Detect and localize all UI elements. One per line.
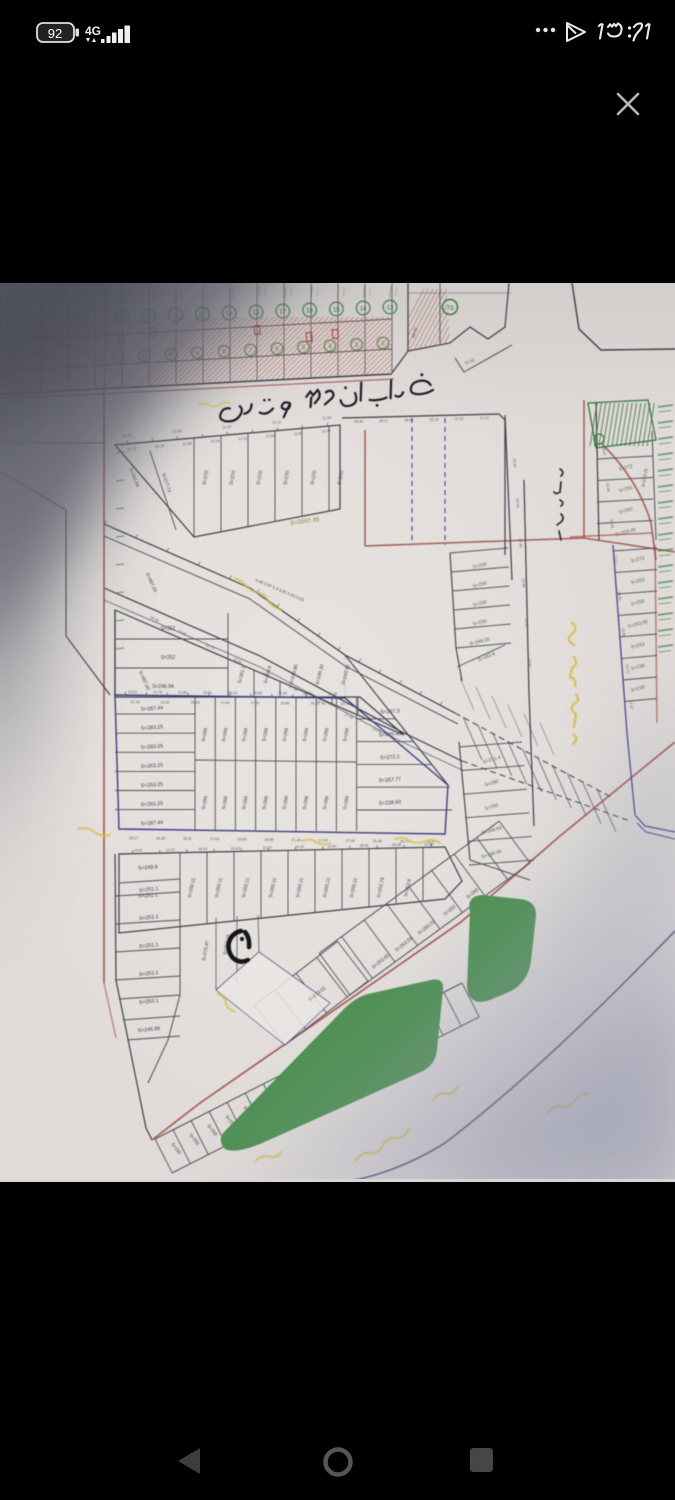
svg-text:21.48: 21.48 (291, 838, 300, 842)
svg-text:19.92: 19.92 (527, 658, 532, 667)
svg-text:20.69: 20.69 (237, 837, 246, 841)
svg-text:28.17: 28.17 (379, 419, 388, 423)
svg-text:17.11: 17.11 (251, 701, 260, 705)
svg-text:15.53: 15.53 (231, 846, 240, 850)
svg-text:30.34: 30.34 (278, 691, 287, 695)
svg-text:15.43: 15.43 (310, 702, 319, 706)
svg-text:30.90: 30.90 (354, 420, 363, 424)
svg-text:17.20: 17.20 (346, 839, 355, 843)
svg-text:29.36: 29.36 (156, 836, 165, 840)
svg-text:22.16: 22.16 (430, 418, 439, 422)
svg-text:21.86: 21.86 (424, 842, 433, 846)
svg-text:92: 92 (48, 26, 62, 41)
svg-text:27.22: 27.22 (272, 420, 281, 425)
svg-text:28.83: 28.83 (253, 691, 262, 695)
svg-text:19.87: 19.87 (134, 849, 143, 853)
svg-text:13.83: 13.83 (178, 691, 187, 695)
svg-text:26.63: 26.63 (198, 847, 207, 851)
svg-text:20.98: 20.98 (392, 843, 401, 847)
svg-text:25.97: 25.97 (183, 837, 192, 841)
svg-text:25.85: 25.85 (280, 701, 289, 705)
svg-text:21.84: 21.84 (322, 416, 331, 421)
svg-text:11.19: 11.19 (222, 425, 231, 430)
svg-text:12.65: 12.65 (183, 441, 192, 446)
svg-text:12.25: 12.25 (166, 848, 175, 852)
svg-text:25.84: 25.84 (512, 458, 517, 467)
svg-text:S=252: S=252 (161, 626, 176, 632)
svg-text:24.18: 24.18 (515, 498, 520, 507)
svg-text:S=252: S=252 (161, 655, 176, 661)
svg-text:13: 13 (387, 305, 394, 311)
svg-text:17.94: 17.94 (220, 701, 229, 705)
svg-text:19.63: 19.63 (128, 690, 137, 694)
svg-text:14.79: 14.79 (153, 690, 162, 694)
svg-text:17.15: 17.15 (455, 417, 464, 421)
svg-text:22.39: 22.39 (130, 700, 139, 704)
svg-text:19.81: 19.81 (203, 691, 212, 695)
svg-text:14: 14 (360, 306, 367, 312)
svg-text:12.44: 12.44 (518, 538, 523, 547)
svg-text:27.64: 27.64 (266, 434, 275, 439)
svg-text:27.27: 27.27 (480, 416, 489, 420)
svg-text:16.14: 16.14 (155, 444, 164, 449)
svg-text:28.48: 28.48 (373, 839, 382, 843)
svg-text:17.33: 17.33 (319, 838, 328, 842)
svg-text:4G: 4G (85, 24, 101, 38)
svg-text:12.17: 12.17 (524, 618, 529, 627)
svg-text:11.82: 11.82 (294, 431, 303, 436)
svg-text:27.64: 27.64 (210, 837, 219, 841)
svg-text:23.18: 23.18 (210, 439, 219, 444)
svg-text:13.38: 13.38 (321, 429, 330, 434)
svg-text:12.81: 12.81 (327, 844, 336, 848)
svg-text:27.18: 27.18 (328, 692, 337, 696)
svg-text:14.72: 14.72 (263, 846, 272, 850)
svg-text:15: 15 (333, 307, 340, 313)
svg-text:25.99: 25.99 (521, 578, 526, 587)
svg-text:19.10: 19.10 (340, 702, 349, 706)
svg-text:28.50: 28.50 (360, 844, 369, 848)
svg-text:17.21: 17.21 (238, 436, 247, 441)
svg-text:28.68: 28.68 (264, 838, 273, 842)
svg-text:22.93: 22.93 (172, 429, 181, 434)
svg-text:21.22: 21.22 (303, 692, 312, 696)
svg-text:28.84: 28.84 (404, 418, 413, 422)
svg-text:14.20: 14.20 (160, 700, 169, 704)
svg-text:73: 73 (446, 305, 454, 312)
svg-text:S=246.94: S=246.94 (152, 684, 174, 690)
svg-text:15.29: 15.29 (190, 701, 199, 705)
svg-text:23.15: 23.15 (295, 845, 304, 849)
svg-text:15.23: 15.23 (228, 691, 237, 695)
svg-text:28.17: 28.17 (129, 836, 138, 840)
